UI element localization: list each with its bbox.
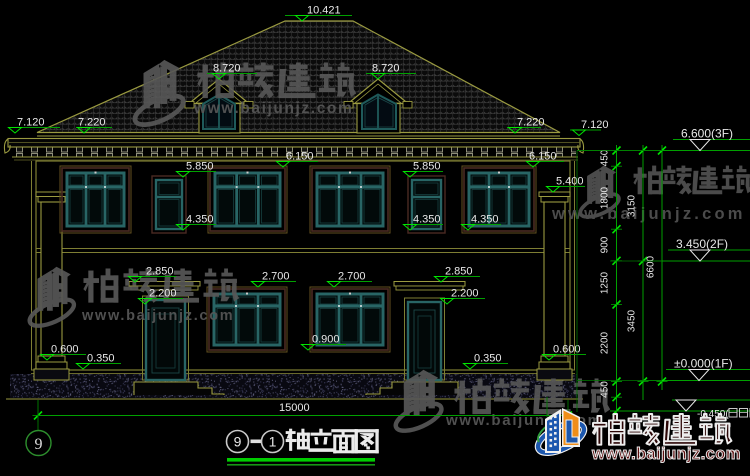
svg-text:2.700: 2.700: [262, 271, 290, 283]
svg-text:8.720: 8.720: [372, 63, 400, 75]
svg-text:7.120: 7.120: [581, 119, 609, 131]
svg-text:5.400: 5.400: [556, 176, 584, 188]
svg-text:0.350: 0.350: [87, 353, 115, 365]
svg-text:2.850: 2.850: [445, 266, 473, 278]
svg-text:www.baijunjz.com: www.baijunjz.com: [551, 205, 746, 223]
svg-text:5.850: 5.850: [413, 161, 441, 173]
svg-text:www.baijunjz.com: www.baijunjz.com: [193, 100, 353, 117]
svg-text:2.850: 2.850: [146, 266, 174, 278]
svg-text:9: 9: [234, 434, 242, 450]
svg-text:1800: 1800: [600, 186, 611, 209]
svg-text:2200: 2200: [600, 331, 611, 354]
svg-text:7.120: 7.120: [17, 117, 45, 129]
svg-text:1: 1: [269, 434, 277, 450]
svg-text:450: 450: [600, 381, 611, 398]
svg-text:4.350: 4.350: [413, 214, 441, 226]
svg-text:7.220: 7.220: [78, 117, 106, 129]
svg-text:0.900: 0.900: [312, 334, 340, 346]
svg-text:6.600(3F): 6.600(3F): [681, 127, 733, 141]
svg-text:6.150: 6.150: [286, 151, 314, 163]
svg-text:2.200: 2.200: [149, 288, 177, 300]
svg-text:10.421: 10.421: [307, 5, 341, 17]
svg-text:15000: 15000: [279, 402, 310, 414]
svg-text:450: 450: [600, 149, 611, 166]
svg-text:4.350: 4.350: [471, 214, 499, 226]
svg-text:±0.000(1F): ±0.000(1F): [674, 357, 733, 371]
svg-text:0.600: 0.600: [51, 344, 79, 356]
svg-text:1250: 1250: [600, 271, 611, 294]
svg-text:0.350: 0.350: [474, 353, 502, 365]
svg-text:www.baijunjz.com: www.baijunjz.com: [81, 308, 234, 324]
svg-text:8.720: 8.720: [213, 63, 241, 75]
svg-text:9: 9: [35, 436, 43, 453]
svg-text:900: 900: [600, 236, 611, 253]
svg-text:5.850: 5.850: [186, 161, 214, 173]
svg-text:6.150: 6.150: [529, 151, 557, 163]
svg-text:7.220: 7.220: [517, 117, 545, 129]
svg-text:4.350: 4.350: [186, 214, 214, 226]
svg-text:2.700: 2.700: [338, 271, 366, 283]
svg-text:6600: 6600: [646, 255, 657, 278]
svg-text:2.200: 2.200: [451, 288, 479, 300]
svg-text:3.450(2F): 3.450(2F): [676, 237, 728, 251]
svg-text:3450: 3450: [627, 309, 638, 332]
svg-text:www.baijunjz.com: www.baijunjz.com: [591, 445, 741, 463]
svg-text:0.600: 0.600: [553, 344, 581, 356]
svg-text:3150: 3150: [627, 194, 638, 217]
